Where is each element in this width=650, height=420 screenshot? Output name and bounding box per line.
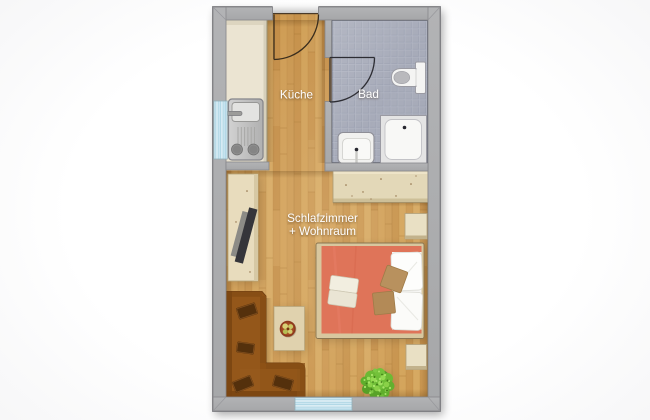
svg-text:Bad: Bad xyxy=(358,88,379,101)
svg-text:Schlafzimmer: Schlafzimmer xyxy=(287,212,358,225)
svg-text:+ Wohnraum: + Wohnraum xyxy=(289,225,356,238)
svg-text:Küche: Küche xyxy=(280,89,313,102)
